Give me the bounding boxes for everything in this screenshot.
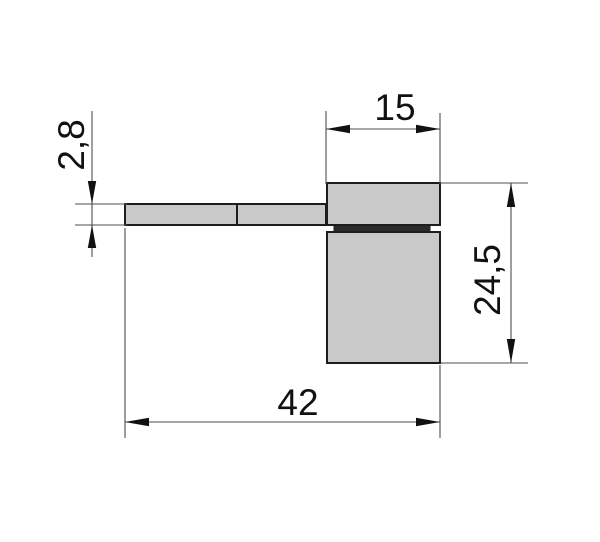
dim-label-bar-thickness: 2,8 [51, 119, 92, 170]
arrowhead-down-icon [88, 181, 96, 204]
clamp-top-jaw [327, 183, 440, 225]
arrowhead-up-icon [88, 225, 96, 248]
arrowhead-right-icon [416, 418, 440, 426]
flat-bar-right-segment [237, 204, 326, 225]
dimension-block-width: 15 [326, 87, 440, 184]
drawing-canvas: 2,8 15 24,5 42 [0, 0, 600, 542]
clamp-body [327, 232, 440, 363]
technical-drawing: 2,8 15 24,5 42 [0, 0, 600, 542]
arrowhead-right-icon [416, 125, 440, 133]
arrowhead-left-icon [326, 125, 350, 133]
dimension-block-height: 24,5 [441, 183, 528, 363]
flat-bar-left-segment [125, 204, 237, 225]
dim-label-block-height: 24,5 [467, 244, 508, 316]
arrowhead-up-icon [507, 183, 515, 207]
dimension-bar-thickness: 2,8 [51, 111, 127, 257]
part-geometry [125, 183, 440, 363]
arrowhead-down-icon [507, 339, 515, 363]
gasket-strip [334, 226, 430, 232]
dim-label-total-length: 42 [277, 382, 318, 423]
dim-label-block-width: 15 [374, 87, 415, 128]
arrowhead-left-icon [125, 418, 149, 426]
